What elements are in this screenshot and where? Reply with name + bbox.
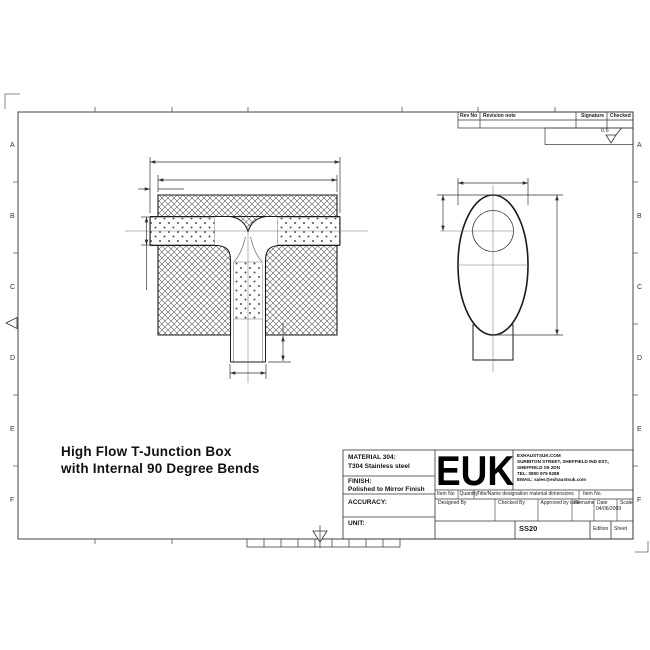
side-view xyxy=(437,178,563,372)
scale-bar xyxy=(247,539,400,547)
zone-letter-left-a: A xyxy=(10,142,15,150)
corner-mark-bottom-right xyxy=(635,541,648,552)
scale-label: Scale xyxy=(620,501,633,507)
zone-letter-left-d: D xyxy=(10,355,15,363)
front-view xyxy=(125,157,368,383)
zone-letter-right-c: C xyxy=(637,284,642,292)
zone-letter-right-e: E xyxy=(637,426,642,434)
zone-letter-right-d: D xyxy=(637,355,642,363)
company-logo: EUK xyxy=(432,447,517,494)
material-value: T304 Stainless steel xyxy=(348,463,410,470)
company-info: EXHAUSTSUK.COM SURBITON STREET, SHEFFIEL… xyxy=(517,453,609,483)
body-left-crosshatch xyxy=(158,246,231,336)
checked-header: Checked xyxy=(610,114,631,120)
sheet-label: Sheet xyxy=(614,527,627,533)
zone-letter-right-a: A xyxy=(637,142,642,150)
title-name-header: Title/Name designation material dimensio… xyxy=(477,492,574,498)
revision-note-header: Revision note xyxy=(483,114,516,120)
surface-finish-value: 0.6 xyxy=(601,128,609,134)
finish-label: FINISH: xyxy=(348,478,371,485)
drawing-sheet: A B C D E F A B C D E F Rev No Revision … xyxy=(0,0,650,650)
company-line-5: EMAIL: sales@exhaustsuk.com xyxy=(517,477,609,483)
drawing-canvas xyxy=(0,0,650,650)
finish-value: Polished to Mirror Finish xyxy=(348,486,425,493)
accuracy-label: ACCURACY: xyxy=(348,499,387,506)
drawing-title-line1: High Flow T-Junction Box xyxy=(61,444,232,460)
surface-finish-symbol xyxy=(545,128,633,145)
zone-letter-right-b: B xyxy=(637,213,642,221)
zone-letter-left-b: B xyxy=(10,213,15,221)
item-no2-header: Item No. xyxy=(583,492,602,498)
zone-letter-left-e: E xyxy=(10,426,15,434)
quantity-header: Quantity xyxy=(460,492,479,498)
doc-number: SS20 xyxy=(519,525,537,534)
signature-header: Signature xyxy=(581,114,604,120)
filename-label: Filename xyxy=(574,501,595,507)
body-right-crosshatch xyxy=(266,246,338,336)
corner-mark-top-left xyxy=(5,94,20,109)
unit-label: UNIT: xyxy=(348,520,365,527)
item-no-header: Item No xyxy=(437,492,455,498)
drawing-title-line2: with Internal 90 Degree Bends xyxy=(61,461,260,477)
date-value: 04/06/2009 xyxy=(596,507,621,513)
zone-letter-right-f: F xyxy=(637,497,641,505)
rev-no-header: Rev No xyxy=(460,114,477,120)
centering-mark-left xyxy=(6,318,17,329)
zone-letter-left-f: F xyxy=(10,497,14,505)
company-line-2: SURBITON STREET, SHEFFIELD IND EST., xyxy=(517,459,609,465)
material-label: MATERIAL 304: xyxy=(348,454,396,461)
checked-by-label: Checked By xyxy=(498,501,525,507)
zone-letter-left-c: C xyxy=(10,284,15,292)
designed-by-label: Designed By xyxy=(438,501,466,507)
edition-label: Edition xyxy=(593,527,608,533)
